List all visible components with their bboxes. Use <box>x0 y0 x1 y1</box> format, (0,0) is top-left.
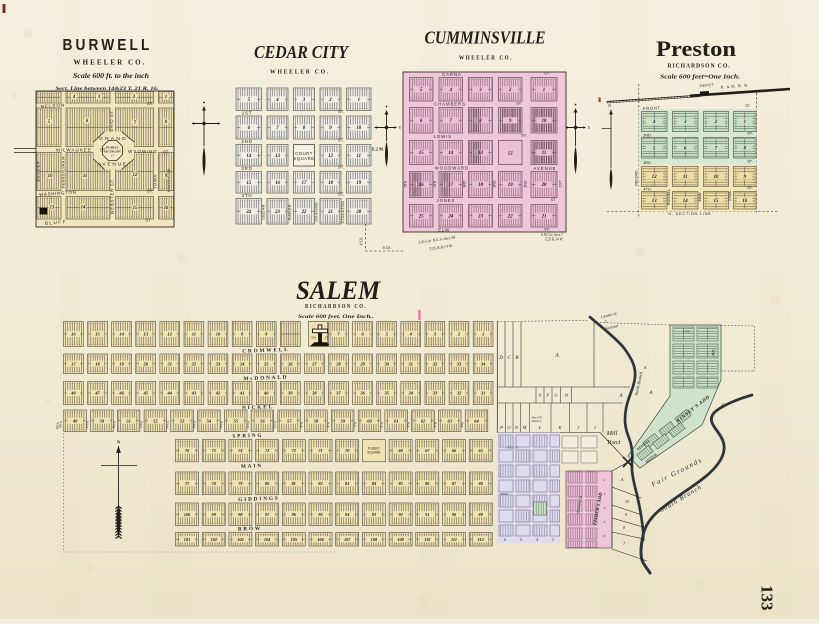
svg-text:ST.: ST. <box>747 186 753 190</box>
svg-text:N.: N. <box>607 103 612 108</box>
svg-text:34: 34 <box>408 391 414 396</box>
svg-text:NICKEL: NICKEL <box>242 404 274 411</box>
svg-text:AVE.: AVE. <box>712 348 716 356</box>
svg-text:ST.: ST. <box>338 192 344 197</box>
svg-text:18: 18 <box>328 181 333 186</box>
svg-text:24: 24 <box>245 210 251 215</box>
svg-text:13: 13 <box>50 206 55 211</box>
svg-text:23: 23 <box>477 215 483 220</box>
svg-text:4TH: 4TH <box>242 193 253 198</box>
svg-text:Mill: Mill <box>606 430 618 437</box>
svg-text:P: P <box>499 425 503 430</box>
svg-text:5: 5 <box>520 537 522 542</box>
svg-text:13: 13 <box>275 154 280 159</box>
svg-text:20: 20 <box>142 361 148 366</box>
svg-text:56: 56 <box>260 418 265 423</box>
svg-text:4: 4 <box>604 506 606 510</box>
svg-text:4: 4 <box>652 120 656 125</box>
svg-text:N. SECTION LINE: N. SECTION LINE <box>668 212 711 216</box>
svg-text:10: 10 <box>714 175 719 180</box>
svg-text:1: 1 <box>165 95 167 100</box>
svg-text:2: 2 <box>714 120 718 125</box>
svg-text:47: 47 <box>94 391 100 396</box>
svg-text:4TH: 4TH <box>643 188 650 192</box>
svg-text:21: 21 <box>541 215 547 220</box>
svg-text:A: A <box>620 477 624 482</box>
svg-text:11: 11 <box>192 332 196 337</box>
svg-text:17: 17 <box>71 361 76 366</box>
svg-text:A: A <box>554 353 559 359</box>
svg-text:30: 30 <box>383 361 389 366</box>
svg-text:6: 6 <box>604 534 606 538</box>
svg-text:Boyd Co.: Boyd Co. <box>532 420 542 423</box>
svg-text:CARNA: CARNA <box>442 72 462 77</box>
svg-text:IOWA: IOWA <box>728 191 732 201</box>
svg-text:36: 36 <box>359 391 365 396</box>
svg-text:16: 16 <box>275 181 280 186</box>
svg-text:MAIN: MAIN <box>698 192 702 201</box>
svg-text:81: 81 <box>292 481 296 486</box>
svg-text:SQUARE: SQUARE <box>293 156 314 161</box>
svg-text:17: 17 <box>302 181 307 186</box>
svg-text:3RD: 3RD <box>643 161 651 165</box>
svg-text:T.25 R.14 W.: T.25 R.14 W. <box>545 238 564 242</box>
svg-text:1: 1 <box>744 120 746 125</box>
svg-text:3: 3 <box>552 537 554 542</box>
svg-text:55: 55 <box>233 418 238 423</box>
svg-text:106: 106 <box>317 537 324 542</box>
svg-text:IOWA: IOWA <box>153 174 158 188</box>
svg-text:41: 41 <box>239 391 245 396</box>
svg-text:S.W.Cor. Sect.7: S.W.Cor. Sect.7 <box>541 233 563 237</box>
svg-text:Scale 600 ft. to the inch: Scale 600 ft. to the inch <box>73 73 149 80</box>
svg-text:35: 35 <box>383 391 389 396</box>
svg-text:45: 45 <box>142 391 148 396</box>
svg-text:15: 15 <box>246 181 251 186</box>
svg-text:22: 22 <box>507 215 513 220</box>
svg-text:1: 1 <box>543 88 545 93</box>
svg-text:ST.: ST. <box>163 150 169 155</box>
svg-text:23: 23 <box>274 210 280 215</box>
svg-text:RANGE: RANGE <box>288 204 292 220</box>
svg-text:16: 16 <box>71 332 76 337</box>
svg-text:5TH: 5TH <box>404 180 408 187</box>
svg-text:ST: ST <box>550 197 556 202</box>
svg-text:SALEM: SALEM <box>296 276 381 305</box>
svg-text:STOCKTON: STOCKTON <box>341 200 345 223</box>
svg-text:F: F <box>545 393 549 398</box>
svg-text:3: 3 <box>605 319 607 324</box>
svg-text:103: 103 <box>237 537 244 542</box>
svg-text:20: 20 <box>355 210 361 215</box>
svg-text:D: D <box>498 356 503 361</box>
svg-text:1ST: 1ST <box>559 180 563 187</box>
svg-text:RECORD: RECORD <box>634 170 638 186</box>
svg-text:12: 12 <box>133 173 138 178</box>
svg-text:19: 19 <box>508 183 513 188</box>
svg-text:WHEELER CO.: WHEELER CO. <box>270 69 330 76</box>
svg-text:RICHARDSON CO.: RICHARDSON CO. <box>668 63 731 70</box>
svg-text:ST.: ST. <box>745 104 751 108</box>
svg-text:AVENUE: AVENUE <box>98 162 128 168</box>
svg-text:6: 6 <box>504 537 506 542</box>
svg-text:OHIO ST.: OHIO ST. <box>109 109 114 132</box>
svg-text:15: 15 <box>419 151 424 156</box>
svg-text:FRONT: FRONT <box>643 105 661 111</box>
svg-text:12: 12 <box>328 154 333 159</box>
svg-text:2ND: 2ND <box>241 139 252 144</box>
svg-text:63: 63 <box>447 418 452 423</box>
svg-text:CEDAR CITY: CEDAR CITY <box>254 42 350 62</box>
svg-text:110: 110 <box>424 537 431 542</box>
svg-text:18: 18 <box>95 361 100 366</box>
svg-text:SQUARE: SQUARE <box>367 451 380 455</box>
svg-text:BURWELL: BURWELL <box>63 37 153 54</box>
svg-text:4: 4 <box>275 98 279 103</box>
svg-text:ST.: ST. <box>516 101 522 106</box>
svg-text:RUSSELL: RUSSELL <box>667 189 671 205</box>
svg-text:4TH: 4TH <box>433 180 437 187</box>
svg-text:54: 54 <box>207 418 212 423</box>
svg-text:107: 107 <box>344 537 351 542</box>
svg-text:CHAMBERS: CHAMBERS <box>434 102 466 107</box>
svg-text:91: 91 <box>425 512 429 517</box>
svg-text:2: 2 <box>604 478 606 482</box>
svg-text:109: 109 <box>397 537 404 542</box>
svg-text:14: 14 <box>246 154 251 159</box>
svg-text:39: 39 <box>287 391 293 396</box>
svg-text:25: 25 <box>418 215 424 220</box>
svg-text:104: 104 <box>264 537 271 542</box>
svg-text:29: 29 <box>359 361 365 366</box>
svg-text:101: 101 <box>184 537 190 542</box>
svg-text:46: 46 <box>118 391 124 396</box>
svg-text:25: 25 <box>263 361 269 366</box>
svg-text:100: 100 <box>184 512 191 517</box>
svg-text:3: 3 <box>478 88 482 93</box>
svg-text:4: 4 <box>72 95 76 100</box>
svg-text:26: 26 <box>287 361 293 366</box>
svg-text:WOODWARD: WOODWARD <box>435 166 469 171</box>
svg-text:133: 133 <box>758 585 777 611</box>
svg-text:16: 16 <box>742 199 747 204</box>
svg-text:Scale 600 feet. One Inch..: Scale 600 feet. One Inch.. <box>298 314 374 320</box>
svg-text:23: 23 <box>215 361 221 366</box>
svg-text:ST: ST <box>145 218 151 223</box>
svg-text:53: 53 <box>180 418 185 423</box>
svg-text:11: 11 <box>542 151 547 156</box>
svg-text:Scale 600 feet=One Inch.: Scale 600 feet=One Inch. <box>660 75 741 81</box>
svg-text:18: 18 <box>478 183 483 188</box>
svg-text:B: B <box>515 356 518 361</box>
svg-text:102: 102 <box>210 537 217 542</box>
svg-text:3RD: 3RD <box>493 180 497 188</box>
svg-text:ST.: ST. <box>147 189 153 194</box>
svg-text:11: 11 <box>83 174 88 179</box>
svg-text:71: 71 <box>318 448 322 453</box>
svg-text:BROW: BROW <box>238 526 262 533</box>
svg-text:12: 12 <box>168 332 173 337</box>
svg-text:AVENUE: AVENUE <box>534 166 557 171</box>
svg-text:WHEELER CO.: WHEELER CO. <box>459 55 513 62</box>
svg-text:Tract: Tract <box>607 439 621 446</box>
svg-text:48: 48 <box>70 391 76 396</box>
svg-text:10: 10 <box>216 332 221 337</box>
svg-text:LEWIS: LEWIS <box>434 134 452 139</box>
svg-text:A: A <box>643 365 647 370</box>
svg-text:1: 1 <box>358 98 360 103</box>
svg-text:15: 15 <box>133 206 138 211</box>
svg-text:21: 21 <box>327 210 333 215</box>
svg-text:10: 10 <box>542 119 547 124</box>
svg-text:11: 11 <box>683 175 688 180</box>
svg-text:10: 10 <box>356 126 361 131</box>
svg-text:33: 33 <box>456 361 462 366</box>
svg-text:44: 44 <box>167 391 173 396</box>
svg-text:59: 59 <box>340 418 345 423</box>
svg-text:1 ST: 1 ST <box>683 330 690 334</box>
svg-text:M: M <box>522 425 527 430</box>
svg-text:RICHARDSON CO.: RICHARDSON CO. <box>305 304 367 310</box>
svg-text:HARRISON: HARRISON <box>167 168 171 192</box>
svg-text:111: 111 <box>451 537 457 542</box>
svg-text:PENNSYLVANIA: PENNSYLVANIA <box>62 156 66 188</box>
svg-text:MAIN: MAIN <box>241 463 263 470</box>
svg-text:ST.: ST. <box>544 71 550 76</box>
svg-text:22: 22 <box>191 361 197 366</box>
svg-text:21: 21 <box>167 361 173 366</box>
svg-text:60: 60 <box>367 418 372 423</box>
svg-text:42: 42 <box>215 391 221 396</box>
svg-text:2: 2 <box>328 98 332 103</box>
svg-text:ST.: ST. <box>544 227 550 232</box>
svg-text:105: 105 <box>291 537 298 542</box>
svg-text:52: 52 <box>153 418 158 423</box>
svg-text:15: 15 <box>714 199 719 204</box>
svg-text:1ST: 1ST <box>242 111 252 116</box>
svg-text:27: 27 <box>311 361 317 366</box>
svg-text:32: 32 <box>432 361 438 366</box>
svg-text:ST.: ST. <box>100 148 106 153</box>
svg-text:ST.: ST. <box>747 132 753 136</box>
svg-text:15: 15 <box>95 332 100 337</box>
svg-text:WYOMING: WYOMING <box>128 149 158 154</box>
svg-text:51: 51 <box>126 418 131 423</box>
svg-text:ST.: ST. <box>747 160 753 164</box>
svg-text:2ND: 2ND <box>524 180 528 188</box>
svg-text:11: 11 <box>357 154 362 159</box>
svg-text:34: 34 <box>480 361 486 366</box>
svg-text:4 Ch.: 4 Ch. <box>359 237 364 246</box>
svg-text:17: 17 <box>111 153 115 157</box>
svg-text:JONES: JONES <box>437 198 456 203</box>
svg-text:31: 31 <box>408 361 414 366</box>
svg-text:64: 64 <box>474 418 479 423</box>
svg-text:61: 61 <box>394 418 399 423</box>
svg-text:LINCOLN: LINCOLN <box>506 446 517 450</box>
svg-text:MILWAUKEE: MILWAUKEE <box>56 148 92 153</box>
svg-text:3: 3 <box>302 98 306 103</box>
svg-text:ST.: ST. <box>338 109 344 114</box>
svg-text:14: 14 <box>683 199 688 204</box>
svg-text:4: 4 <box>536 537 538 542</box>
svg-text:3RD: 3RD <box>463 180 467 188</box>
svg-text:ELM: ELM <box>438 227 450 232</box>
svg-text:20: 20 <box>541 183 547 188</box>
svg-text:10: 10 <box>48 174 53 179</box>
svg-text:ST.: ST. <box>521 133 527 138</box>
svg-text:112: 112 <box>478 537 485 542</box>
svg-text:2: 2 <box>132 95 136 100</box>
svg-text:5: 5 <box>604 520 606 524</box>
svg-text:Preston: Preston <box>656 36 736 61</box>
svg-text:62: 62 <box>421 418 426 423</box>
svg-text:2ND: 2ND <box>643 133 651 137</box>
svg-text:14: 14 <box>119 332 124 337</box>
svg-text:CUMMINSVILLE: CUMMINSVILLE <box>425 28 546 48</box>
svg-text:13: 13 <box>143 332 148 337</box>
svg-text:14: 14 <box>81 206 86 211</box>
svg-text:E.2 M.: E.2 M. <box>372 147 384 152</box>
svg-text:33: 33 <box>432 391 438 396</box>
svg-text:3: 3 <box>683 120 687 125</box>
svg-text:3: 3 <box>604 492 606 496</box>
svg-text:2: 2 <box>508 88 512 93</box>
svg-text:SPRING: SPRING <box>232 433 263 440</box>
svg-text:WHEELER CO.: WHEELER CO. <box>74 58 147 67</box>
svg-text:1: 1 <box>482 332 484 337</box>
svg-text:BECKER: BECKER <box>36 160 41 181</box>
svg-text:58: 58 <box>314 418 319 423</box>
svg-text:JOHNSON: JOHNSON <box>314 202 318 222</box>
svg-text:3: 3 <box>97 95 101 100</box>
svg-text:28: 28 <box>335 361 341 366</box>
svg-text:E: E <box>538 393 542 398</box>
svg-text:49: 49 <box>72 418 78 423</box>
svg-text:WANE: WANE <box>500 492 508 496</box>
svg-text:19: 19 <box>356 181 361 186</box>
svg-text:50: 50 <box>100 418 105 423</box>
svg-text:ST.: ST. <box>338 138 344 143</box>
svg-text:37: 37 <box>335 391 341 396</box>
svg-text:13: 13 <box>652 199 657 204</box>
svg-text:GRAND: GRAND <box>99 136 128 142</box>
svg-text:6 Ch.: 6 Ch. <box>383 245 392 250</box>
svg-text:CEM: CEM <box>311 338 316 340</box>
svg-text:22: 22 <box>301 210 307 215</box>
svg-text:12: 12 <box>508 151 513 156</box>
svg-text:3RD: 3RD <box>241 166 252 171</box>
svg-text:16: 16 <box>164 206 169 211</box>
svg-text:40: 40 <box>263 391 269 396</box>
svg-text:4: 4 <box>449 88 453 93</box>
svg-text:ST.: ST. <box>147 101 153 106</box>
svg-text:24: 24 <box>239 361 245 366</box>
svg-text:CEDAR: CEDAR <box>261 204 265 220</box>
svg-text:32: 32 <box>456 391 462 396</box>
svg-text:L: L <box>538 425 542 430</box>
svg-text:14: 14 <box>448 151 453 156</box>
svg-text:31: 31 <box>480 391 486 396</box>
svg-text:24: 24 <box>447 215 453 220</box>
svg-text:57: 57 <box>287 418 292 423</box>
svg-text:ST.: ST. <box>338 165 344 170</box>
svg-text:38: 38 <box>311 391 317 396</box>
svg-text:12: 12 <box>652 175 657 180</box>
svg-text:WEBSTER ST.: WEBSTER ST. <box>110 178 115 215</box>
svg-text:108: 108 <box>371 537 378 542</box>
svg-text:19: 19 <box>119 361 124 366</box>
svg-text:43: 43 <box>191 391 197 396</box>
